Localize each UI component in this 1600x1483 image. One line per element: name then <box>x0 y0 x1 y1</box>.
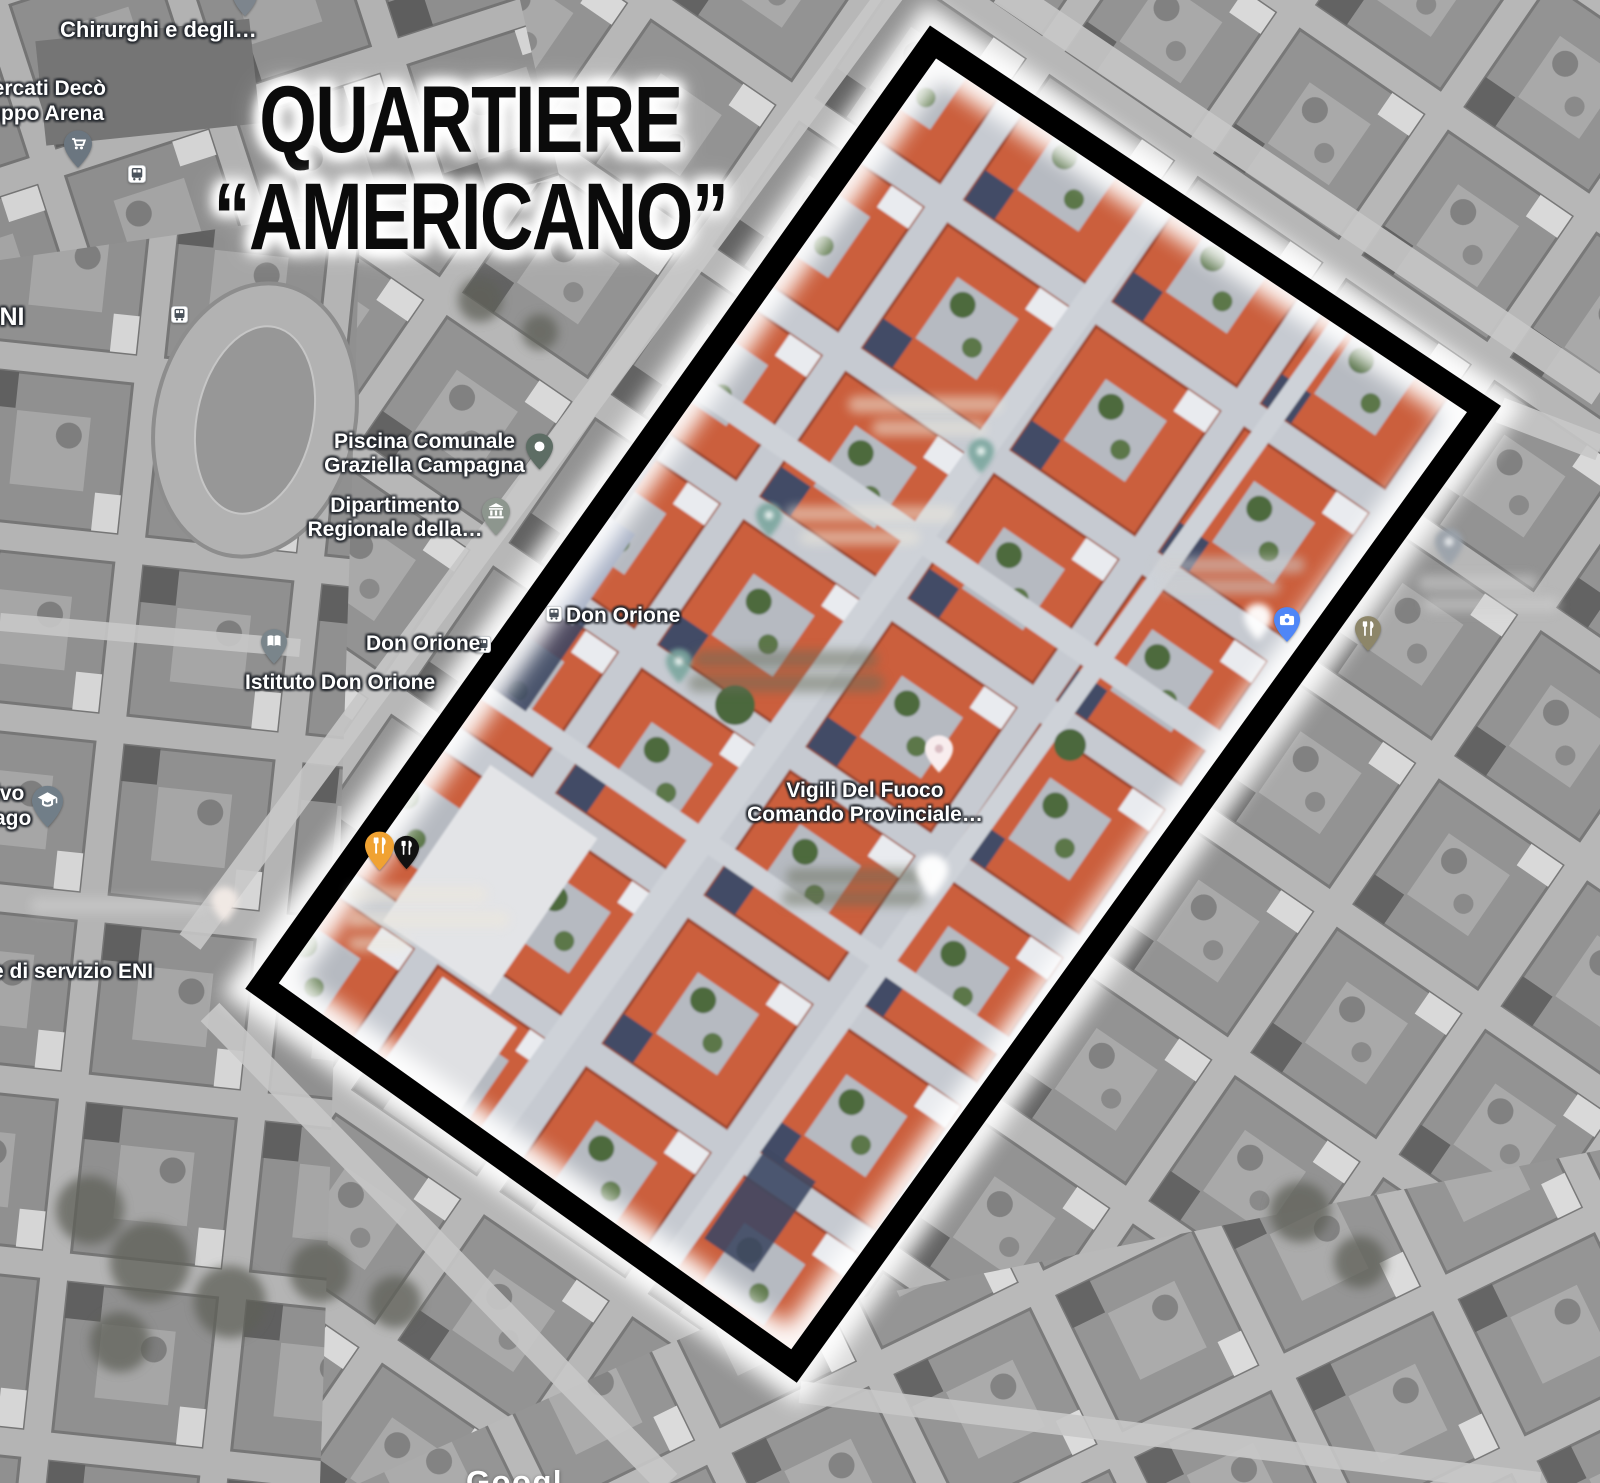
poi-label-fire-line2: Comando Provinciale… <box>740 803 990 827</box>
poi-label-pool-line1: Piscina Comunale <box>322 430 527 454</box>
poi-label-ivo[interactable]: ivo <box>0 782 24 806</box>
poi-label-department-line1: Dipartimento <box>305 494 485 518</box>
poi-label-eni-station[interactable]: e di servizio ENI <box>0 960 153 984</box>
poi-label-don-orione-stop[interactable]: Don Orione <box>566 604 680 628</box>
poi-label-oni[interactable]: ONI <box>0 303 24 332</box>
poi-label-ago[interactable]: ago <box>0 807 31 831</box>
poi-label-fire-department[interactable]: Vigili Del Fuoco Comando Provinciale… <box>740 779 990 827</box>
poi-label-department-line2: Regionale della… <box>305 518 485 542</box>
map-screenshot: Chirurghi e degli… mercati Decò ruppo Ar… <box>0 0 1600 1483</box>
poi-label-surgeons[interactable]: Chirurghi e degli… <box>60 17 257 42</box>
poi-label-supermarket-line2[interactable]: ruppo Arena <box>0 102 104 126</box>
poi-label-supermarket-line1[interactable]: mercati Decò <box>0 77 106 101</box>
poi-label-fire-line1: Vigili Del Fuoco <box>740 779 990 803</box>
title-overlay: QUARTIERE “AMERICANO” <box>135 72 806 266</box>
google-watermark: Googl <box>466 1464 563 1483</box>
poi-label-department[interactable]: Dipartimento Regionale della… <box>305 494 485 542</box>
poi-label-don-orione-area[interactable]: Don Orione <box>366 632 480 656</box>
poi-label-pool[interactable]: Piscina Comunale Graziella Campagna <box>322 430 527 478</box>
title-line2: “AMERICANO” <box>135 169 806 266</box>
poi-label-istituto-don-orione[interactable]: Istituto Don Orione <box>245 671 435 695</box>
title-line1: QUARTIERE <box>135 72 806 169</box>
poi-label-pool-line2: Graziella Campagna <box>322 454 527 478</box>
